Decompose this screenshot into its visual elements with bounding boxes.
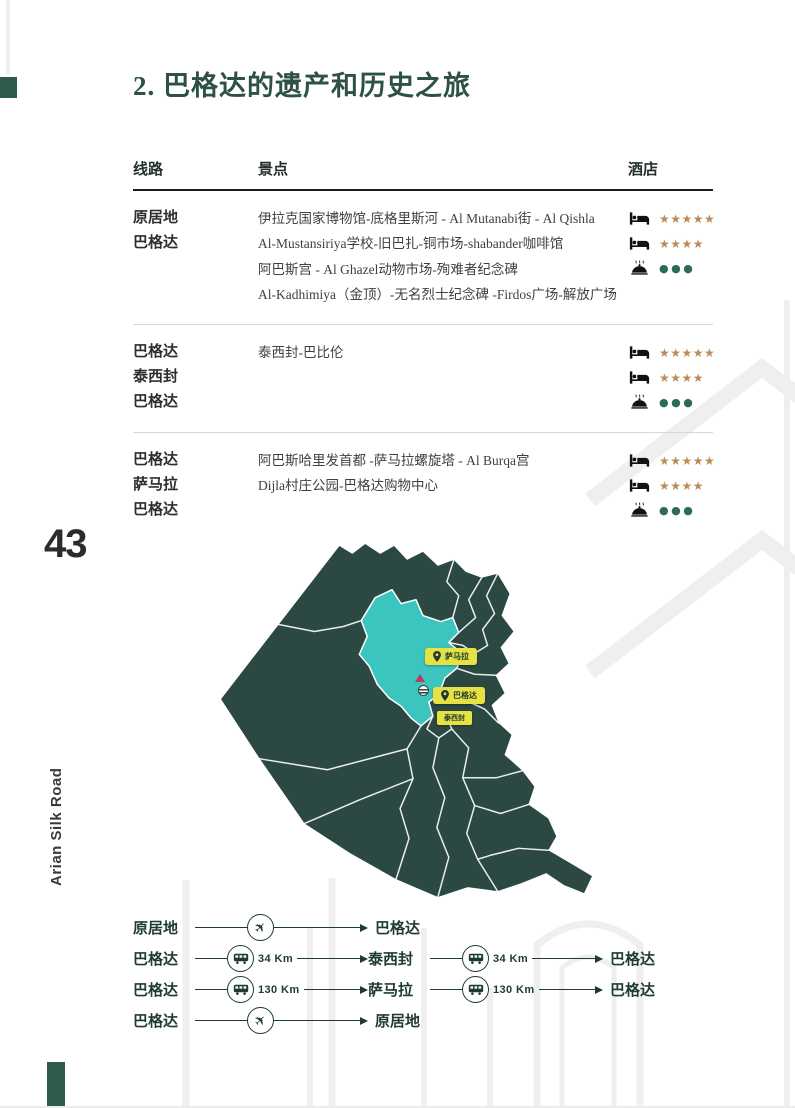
route-city: 巴格达 <box>133 498 258 523</box>
restaurant-icon <box>628 260 650 277</box>
bed-icon <box>628 211 650 226</box>
dot-rating: ●●● <box>659 397 695 408</box>
transfer-from: 原居地 <box>133 917 195 938</box>
transfer-row: 巴格达 130 Km 萨马拉 130 Km 巴格达 <box>133 974 733 1005</box>
left-accent-square <box>0 77 17 98</box>
transfer-via: 泰西封 <box>368 948 430 969</box>
bed-icon <box>628 478 650 493</box>
map-label-text: 巴格达 <box>453 690 477 701</box>
distance-label: 34 Km <box>493 953 528 965</box>
arrow-icon <box>595 955 603 963</box>
site-triangle-marker <box>415 674 425 682</box>
table-row: 巴格达 泰西封 巴格达 泰西封-巴比伦 ★★★★★ ★★★★ <box>133 324 713 432</box>
route-city: 巴格达 <box>133 448 258 473</box>
restaurant-icon <box>628 502 650 519</box>
bottom-accent-bar <box>47 1062 65 1108</box>
distance-label: 34 Km <box>258 953 293 965</box>
map-label-text: 萨马拉 <box>445 651 469 662</box>
route-city: 巴格达 <box>133 340 258 365</box>
attraction-line: Dijla村庄公园-巴格达购物中心 <box>258 473 628 498</box>
page-title: 2. 巴格达的遗产和历史之旅 <box>133 64 471 103</box>
iraq-map: 萨马拉 巴格达 泰西封 <box>203 538 621 906</box>
transfer-to: 巴格达 <box>375 917 437 938</box>
star-rating: ★★★★★ <box>659 347 715 359</box>
header-hotels: 酒店 <box>628 158 713 179</box>
transfer-row: 巴格达 ✈ 原居地 <box>133 1005 733 1036</box>
route-city: 原居地 <box>133 206 258 231</box>
route-city: 巴格达 <box>133 390 258 415</box>
pin-icon <box>441 690 449 701</box>
plane-icon: ✈ <box>247 914 274 941</box>
bus-icon <box>462 945 489 972</box>
arrow-icon <box>360 986 368 994</box>
star-rating: ★★★★ <box>659 480 704 492</box>
arrow-icon <box>595 986 603 994</box>
attraction-line: 阿巴斯哈里发首都 -萨马拉螺旋塔 - Al Burqa宫 <box>258 448 628 473</box>
star-rating: ★★★★ <box>659 238 704 250</box>
transfer-via: 萨马拉 <box>368 979 430 1000</box>
bed-icon <box>628 236 650 251</box>
transfer-row: 原居地 ✈ 巴格达 <box>133 912 733 943</box>
arrow-icon <box>360 924 368 932</box>
transfer-to: 原居地 <box>375 1010 437 1031</box>
transfer-to: 巴格达 <box>610 948 672 969</box>
table-header-row: 线路 景点 酒店 <box>133 158 713 191</box>
map-label-samarra: 萨马拉 <box>425 648 477 665</box>
bus-stop-marker <box>418 685 429 696</box>
route-city: 泰西封 <box>133 365 258 390</box>
map-label-text: 泰西封 <box>444 713 465 723</box>
attraction-line: Al-Mustansiriya学校-旧巴扎-铜市场-shabander咖啡馆 <box>258 231 628 256</box>
restaurant-icon <box>628 394 650 411</box>
bus-icon <box>462 976 489 1003</box>
map-label-ctesiphon: 泰西封 <box>437 711 472 725</box>
dot-rating: ●●● <box>659 505 695 516</box>
star-rating: ★★★★★ <box>659 455 715 467</box>
transfer-diagram: 原居地 ✈ 巴格达 巴格达 34 Km 泰西封 34 Km <box>133 912 733 1036</box>
header-route: 线路 <box>133 158 258 179</box>
dot-rating: ●●● <box>659 263 695 274</box>
transfer-from: 巴格达 <box>133 948 195 969</box>
distance-label: 130 Km <box>258 984 300 996</box>
side-brand-label: Arian Silk Road <box>48 768 65 886</box>
bus-icon <box>227 976 254 1003</box>
route-city: 巴格达 <box>133 231 258 256</box>
itinerary-table: 线路 景点 酒店 原居地 巴格达 伊拉克国家博物馆-底格里斯河 - Al Mut… <box>133 158 713 540</box>
map-label-baghdad: 巴格达 <box>433 687 485 704</box>
bed-icon <box>628 345 650 360</box>
bed-icon <box>628 453 650 468</box>
attraction-line: 阿巴斯宫 - Al Ghazel动物市场-殉难者纪念碑 <box>258 257 628 282</box>
transfer-row: 巴格达 34 Km 泰西封 34 Km 巴格达 <box>133 943 733 974</box>
arrow-icon <box>360 1017 368 1025</box>
distance-label: 130 Km <box>493 984 535 996</box>
bed-icon <box>628 370 650 385</box>
bus-icon <box>227 945 254 972</box>
transfer-from: 巴格达 <box>133 1010 195 1031</box>
table-row: 原居地 巴格达 伊拉克国家博物馆-底格里斯河 - Al Mutanabi街 - … <box>133 191 713 324</box>
arrow-icon <box>360 955 368 963</box>
route-city: 萨马拉 <box>133 473 258 498</box>
page-number: 43 <box>44 522 87 567</box>
attraction-line: 泰西封-巴比伦 <box>258 340 628 365</box>
transfer-from: 巴格达 <box>133 979 195 1000</box>
table-row: 巴格达 萨马拉 巴格达 阿巴斯哈里发首都 -萨马拉螺旋塔 - Al Burqa宫… <box>133 432 713 540</box>
star-rating: ★★★★ <box>659 372 704 384</box>
attraction-line: Al-Kadhimiya（金顶）-无名烈士纪念碑 -Firdos广场-解放广场 <box>258 282 628 307</box>
plane-icon: ✈ <box>247 1007 274 1034</box>
star-rating: ★★★★★ <box>659 213 715 225</box>
attraction-line: 伊拉克国家博物馆-底格里斯河 - Al Mutanabi街 - Al Qishl… <box>258 206 628 231</box>
header-attractions: 景点 <box>258 158 628 179</box>
transfer-to: 巴格达 <box>610 979 672 1000</box>
pin-icon <box>433 651 441 662</box>
